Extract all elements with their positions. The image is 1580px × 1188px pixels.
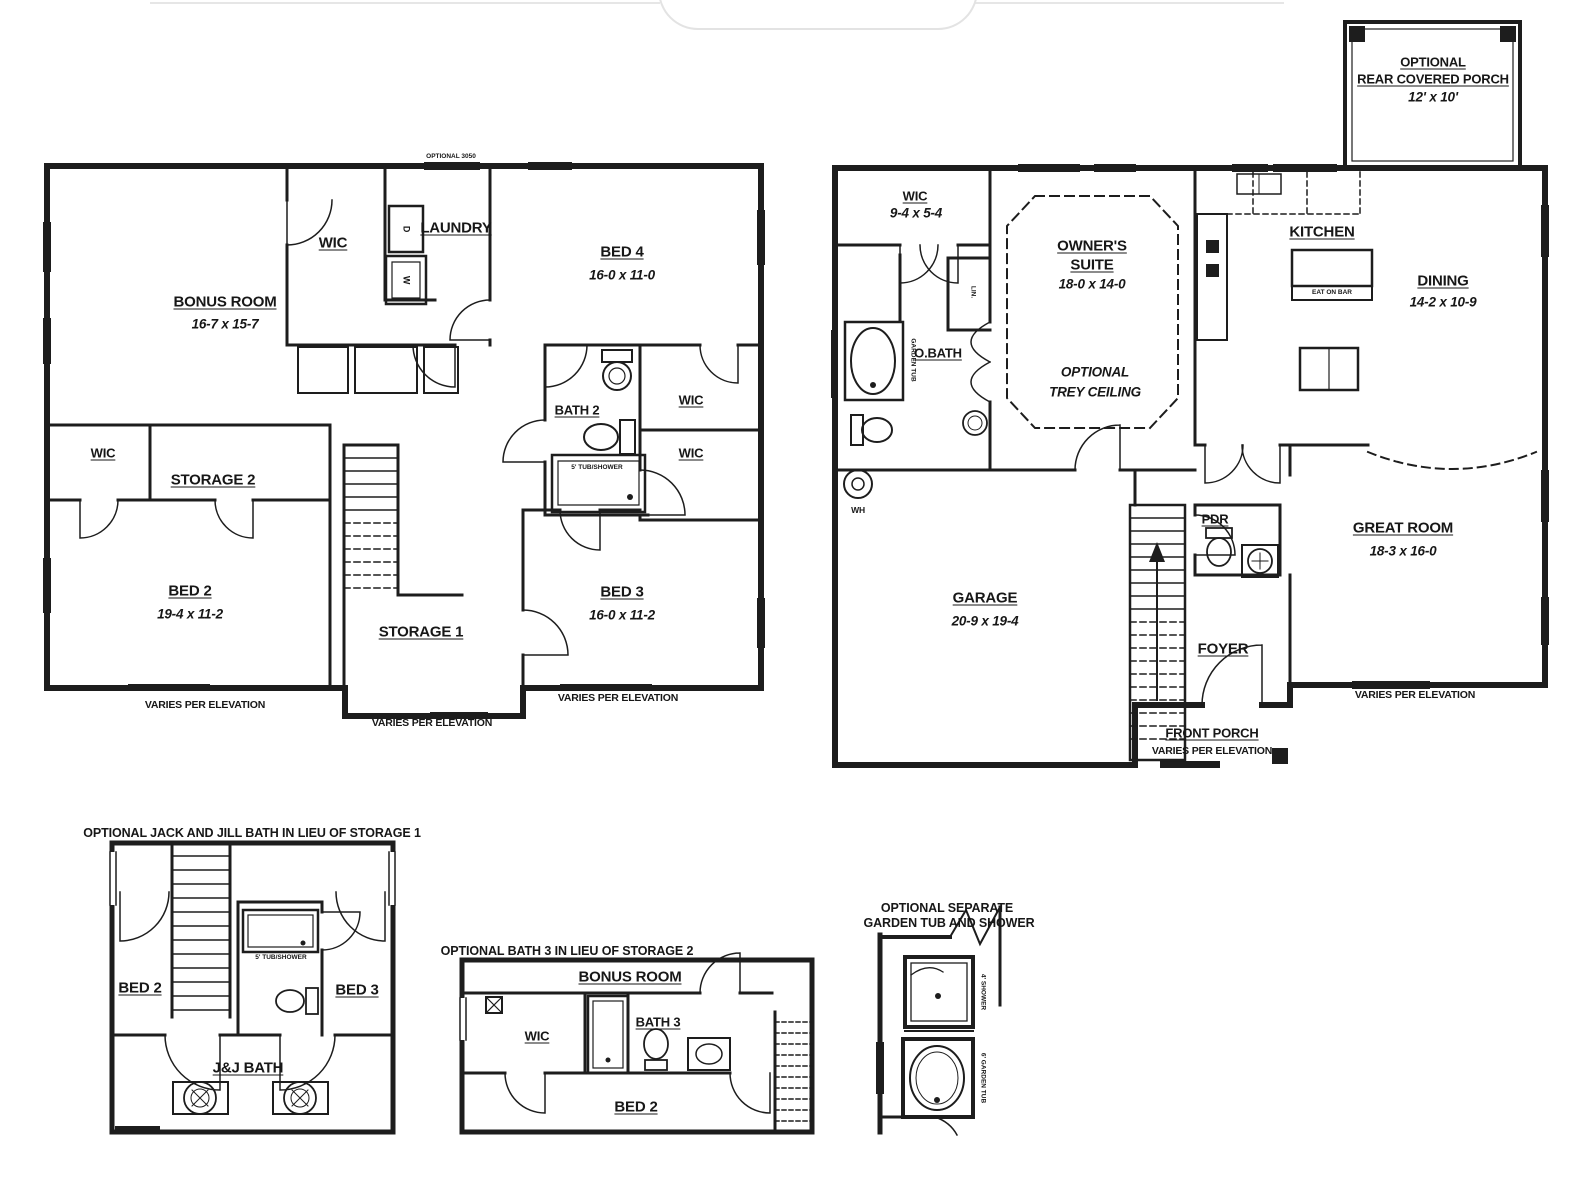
jj-tub-note: 5' TUB/SHOWER xyxy=(255,955,306,962)
eat-on-bar-note: EAT ON BAR xyxy=(1312,290,1352,297)
gt-shower-note: 4' SHOWER xyxy=(979,974,986,1010)
bath2-fixtures xyxy=(552,350,645,512)
room-label-owners-1: OWNER'S xyxy=(1057,239,1127,254)
first-floor-doors xyxy=(900,245,1280,705)
varies-note-bed3: VARIES PER ELEVATION xyxy=(558,693,678,704)
appliance-dryer-label: D xyxy=(402,226,411,232)
first-floor-linework xyxy=(831,22,1549,768)
room-label-dining: DINING xyxy=(1417,274,1468,289)
jj-room-label-bath: J&J BATH xyxy=(213,1061,284,1076)
b3-room-label-bath3: BATH 3 xyxy=(636,1016,681,1029)
water-heater-label: WH xyxy=(851,506,865,515)
bath3-fixtures xyxy=(588,996,730,1073)
window-bars xyxy=(831,26,1549,768)
dim-wic-ff: 9-4 x 5-4 xyxy=(890,206,942,220)
room-label-obath: O.BATH xyxy=(914,347,962,360)
b3-room-label-bonus: BONUS ROOM xyxy=(578,970,681,985)
room-label-bonus: BONUS ROOM xyxy=(173,295,276,310)
jack-jill-title: OPTIONAL JACK AND JILL BATH IN LIEU OF S… xyxy=(83,827,421,840)
room-label-bed3: BED 3 xyxy=(600,585,643,600)
varies-note-storage1: VARIES PER ELEVATION xyxy=(372,718,492,729)
stairs-first-floor xyxy=(1130,505,1185,760)
varies-note-great-room: VARIES PER ELEVATION xyxy=(1355,690,1475,701)
room-label-wic-left: WIC xyxy=(91,447,116,460)
room-label-wic-ff: WIC xyxy=(903,190,928,203)
room-label-wic-right-lower: WIC xyxy=(679,447,704,460)
linen-note: LIN. xyxy=(969,286,976,298)
room-label-laundry: LAUNDRY xyxy=(420,221,491,236)
jj-room-label-bed3: BED 3 xyxy=(335,983,378,998)
gt-tub-note: 6' GARDEN TUB xyxy=(979,1053,986,1103)
room-label-storage1: STORAGE 1 xyxy=(379,625,464,640)
dim-bed2: 19-4 x 11-2 xyxy=(157,607,223,621)
dim-bed3: 16-0 x 11-2 xyxy=(589,608,655,622)
varies-note-bed2: VARIES PER ELEVATION xyxy=(145,700,265,711)
jj-room-label-bed2: BED 2 xyxy=(118,981,161,996)
room-label-foyer: FOYER xyxy=(1198,642,1249,657)
trey-note-2: TREY CEILING xyxy=(1049,385,1141,399)
room-label-owners-2: SUITE xyxy=(1070,258,1113,273)
dim-porch: 12' x 10' xyxy=(1408,90,1458,104)
floorplan-sheet: OPTIONAL 3050 BONUS ROOM 16-7 x 15-7 WIC… xyxy=(0,0,1580,1188)
b3-room-label-bed2: BED 2 xyxy=(614,1100,657,1115)
pdr-fixtures xyxy=(1206,528,1278,577)
porch-title-1: OPTIONAL xyxy=(1400,56,1466,69)
room-label-storage2: STORAGE 2 xyxy=(171,473,256,488)
room-label-bed2: BED 2 xyxy=(168,584,211,599)
owner-tub-note: GARDEN TUB xyxy=(909,338,916,381)
garden-tub-title-1: OPTIONAL SEPARATE xyxy=(881,902,1013,915)
dim-bed4: 16-0 x 11-0 xyxy=(589,268,655,282)
trey-note-1: OPTIONAL xyxy=(1061,365,1129,379)
kitchen-fixtures xyxy=(1197,172,1372,390)
room-label-kitchen: KITCHEN xyxy=(1289,225,1354,240)
bath3-title: OPTIONAL BATH 3 IN LIEU OF STORAGE 2 xyxy=(441,945,694,958)
room-label-pdr: PDR xyxy=(1202,513,1229,526)
dim-bonus: 16-7 x 15-7 xyxy=(192,317,259,331)
floorplan-linework xyxy=(0,0,1580,1188)
garden-tub-title-2: GARDEN TUB AND SHOWER xyxy=(863,917,1034,930)
water-heater xyxy=(844,470,872,498)
dim-dining: 14-2 x 10-9 xyxy=(1410,295,1477,309)
room-label-bed4: BED 4 xyxy=(600,245,643,260)
dim-garage: 20-9 x 19-4 xyxy=(952,614,1019,628)
dim-owners: 18-0 x 14-0 xyxy=(1059,277,1126,291)
room-label-great-room: GREAT ROOM xyxy=(1353,521,1453,536)
room-label-garage: GARAGE xyxy=(953,591,1018,606)
dim-great-room: 18-3 x 16-0 xyxy=(1370,544,1437,558)
porch-title-2: REAR COVERED PORCH xyxy=(1357,73,1509,86)
front-porch-varies-note: VARIES PER ELEVATION xyxy=(1152,746,1272,757)
room-label-front-porch: FRONT PORCH xyxy=(1165,727,1258,740)
room-label-wic-top: WIC xyxy=(319,236,348,251)
room-label-bath2: BATH 2 xyxy=(555,404,600,417)
appliance-washer-label: W xyxy=(402,276,411,284)
b3-room-label-wic: WIC xyxy=(525,1030,550,1043)
bath2-tub-note: 5' TUB/SHOWER xyxy=(571,465,622,472)
optional-window-note: OPTIONAL 3050 xyxy=(426,154,476,161)
room-label-wic-right-upper: WIC xyxy=(679,394,704,407)
